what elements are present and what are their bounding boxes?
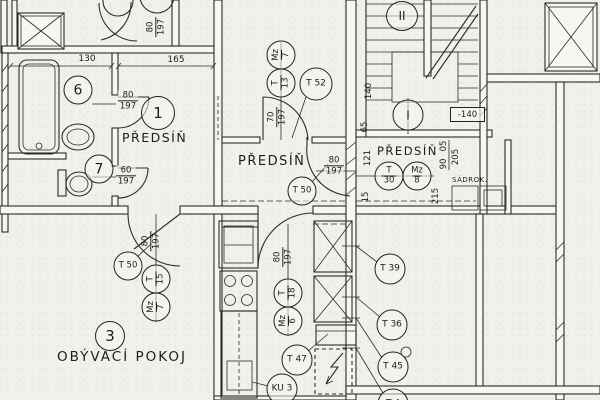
level-mark: -140	[450, 107, 485, 122]
room-number-hall: 1	[141, 96, 175, 130]
door-tag-t47: T 47	[282, 345, 313, 376]
door-tag-t50-center: T 50	[288, 177, 317, 206]
dim-door-hall-center: 80197	[324, 155, 344, 176]
dim-121: 121	[364, 150, 373, 166]
dim-door-wc: 60197	[116, 165, 136, 186]
room-number-bathroom: 6	[64, 76, 93, 105]
room-label-living: OBÝVACÍ POKOJ	[57, 349, 187, 365]
dim-140: 140	[365, 83, 374, 99]
dim-door-hall-top: 70197	[266, 107, 287, 127]
stair-flight-upper: II	[386, 1, 418, 31]
door-tag-t50-left: T 50	[114, 252, 143, 281]
stair-flight-lower: I	[393, 100, 424, 131]
floor-plan: PŘEDSÍŇ PŘEDSÍŇ PŘEDSÍŇ OBÝVACÍ POKOJ SÁ…	[0, 0, 600, 400]
dim-215: 215	[432, 188, 441, 204]
frame-tag-top-mz: Mz7	[267, 41, 296, 70]
room-number-living: 3	[95, 321, 125, 351]
dim-door-top-left: 80197	[145, 17, 166, 37]
frame-tag-right-t: T30	[375, 162, 404, 191]
door-tag-t39: T 39	[375, 254, 406, 285]
bathtub	[19, 60, 59, 154]
kitchen-counter	[221, 221, 258, 398]
dim-15: 15	[362, 192, 371, 203]
dim-65: 65	[361, 122, 370, 133]
frame-tag-left-t: T15	[142, 265, 171, 294]
frame-tag-right-mz: Mz8	[403, 162, 432, 191]
door-tag-t52: T 52	[300, 68, 333, 101]
dim-door-bath: 80197	[118, 90, 138, 111]
door-tag-ku3: KU 3	[267, 374, 298, 400]
room-label-hall-left: PŘEDSÍŇ	[122, 130, 187, 145]
frame-tag-kitchen-t: T18	[274, 279, 303, 308]
dim-130: 130	[78, 54, 95, 64]
dim-90: 90	[440, 159, 449, 170]
frame-tag-left-mz: Mz7	[142, 293, 171, 322]
lightning-arrow	[326, 353, 343, 384]
dim-205: 205	[452, 149, 461, 165]
dim-165: 165	[167, 55, 184, 65]
room-label-hall-center: PŘEDSÍŇ	[238, 154, 305, 169]
dim-door-kitchen: 80197	[272, 247, 293, 267]
dim-door-living: 80197	[140, 231, 161, 251]
frame-tag-kitchen-mz: Mz6	[274, 307, 303, 336]
dim-05: 05	[440, 141, 449, 152]
door-tag-t45: T 45	[378, 352, 409, 383]
washbasin	[62, 124, 94, 150]
note-sadrok: SÁDROK.	[452, 176, 487, 184]
room-number-wc: 7	[85, 155, 114, 184]
frame-tag-top-t: T13	[267, 69, 296, 98]
room-label-hall-right: PŘEDSÍŇ	[377, 144, 438, 158]
stove	[220, 271, 257, 311]
door-tag-t36: T 36	[377, 310, 408, 341]
kitchen-sink	[219, 221, 258, 268]
